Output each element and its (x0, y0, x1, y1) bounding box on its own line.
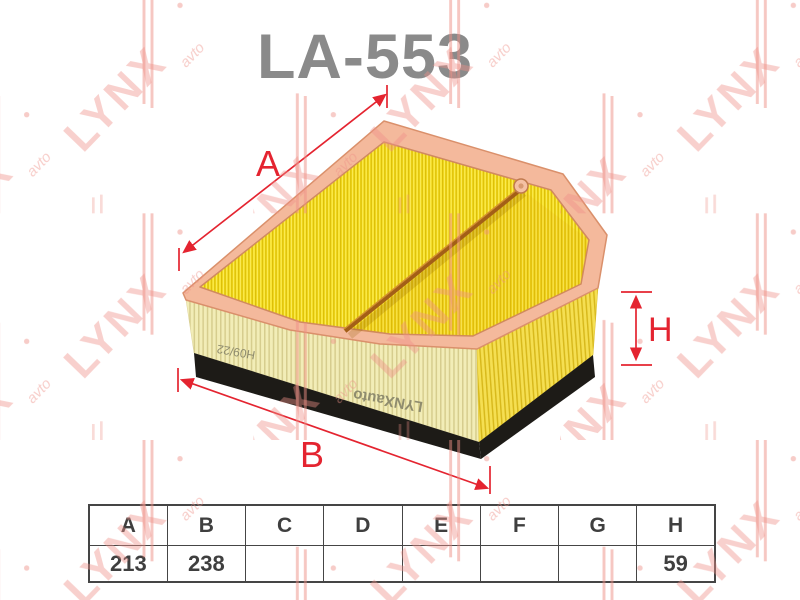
spec-value-f (480, 546, 558, 583)
spec-table: A B C D E F G H 213 238 59 (88, 504, 716, 583)
page-title: LA-553 (0, 26, 730, 89)
dim-h-label: H (648, 311, 673, 349)
spec-value-c (246, 546, 324, 583)
spec-col-h: H (637, 505, 715, 546)
product-sheet: H09/22 LYNXauto A B (0, 0, 800, 600)
spec-col-f: F (480, 505, 558, 546)
spec-value-d (324, 546, 402, 583)
spec-col-g: G (559, 505, 637, 546)
spec-col-b: B (167, 505, 245, 546)
spec-value-b: 238 (167, 546, 245, 583)
spec-col-a: A (89, 505, 167, 546)
spec-value-a: 213 (89, 546, 167, 583)
spec-col-d: D (324, 505, 402, 546)
dim-b-label: B (300, 434, 324, 475)
spec-value-g (559, 546, 637, 583)
spec-col-e: E (402, 505, 480, 546)
spec-value-h: 59 (637, 546, 715, 583)
spec-table-value-row: 213 238 59 (89, 546, 715, 583)
dim-a-label: A (256, 143, 280, 184)
filter-grommet-hole (518, 183, 523, 188)
spec-value-e (402, 546, 480, 583)
spec-table-header-row: A B C D E F G H (89, 505, 715, 546)
spec-col-c: C (246, 505, 324, 546)
